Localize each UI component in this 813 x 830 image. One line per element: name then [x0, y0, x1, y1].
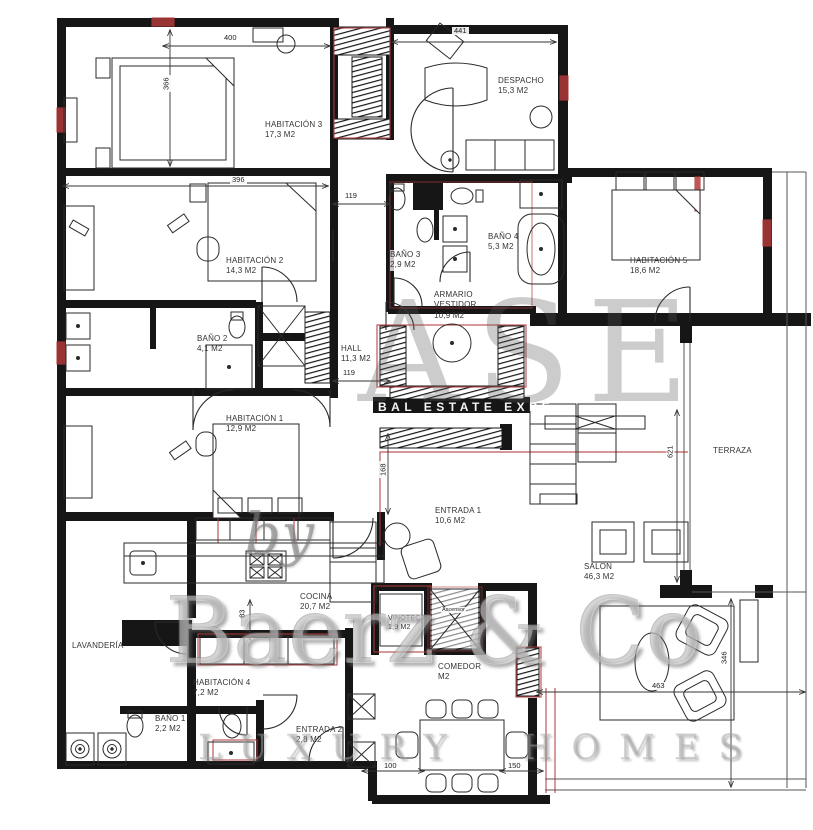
- bed-habitacion-1: [64, 424, 302, 518]
- dimension-396: 396: [230, 176, 247, 184]
- room-label-entrada-2: ENTRADA 22,8 M2: [296, 725, 356, 746]
- entrada-armchair: [384, 523, 442, 580]
- room-label-bano-2: BAÑO 24,1 M2: [197, 334, 247, 355]
- floor-plan: HABITACIÓN 317,3 M2 DESPACHO15,3 M2 HABI…: [0, 0, 813, 830]
- room-label-habitacion-1: HABITACIÓN 112,9 M2: [226, 414, 306, 435]
- kitchen-counter: [124, 518, 384, 602]
- room-label-habitacion-5: HABITACIÓN 518,6 M2: [630, 256, 710, 277]
- room-label-habitacion-4: HABITACIÓN 47,2 M2: [193, 678, 273, 699]
- elevator-label: Ascensor: [441, 607, 466, 613]
- room-label-cocina: COCINA20,7 M2: [300, 592, 350, 613]
- room-label-habitacion-2: HABITACIÓN 214,3 M2: [226, 256, 298, 277]
- terrace-lounge: [600, 600, 758, 724]
- dining-table: [396, 700, 528, 792]
- dimension-346: 346: [721, 649, 729, 666]
- dimension-83: 83: [238, 608, 246, 620]
- room-label-vinoteca: VINOTECA1,9 M2: [388, 614, 438, 632]
- room-label-bano-4: BAÑO 45,3 M2: [488, 232, 534, 253]
- room-label-armario-vestidor: ARMARIO VESTIDOR10,9 M2: [434, 290, 484, 321]
- room-label-salon: SALON46,3 M2: [584, 562, 634, 583]
- salon-sofa: [530, 404, 688, 562]
- dimension-119-bottom: 119: [341, 369, 357, 377]
- dimension-100: 100: [382, 762, 399, 770]
- dimension-366: 366: [163, 75, 171, 92]
- bed-habitacion-5: [612, 172, 704, 260]
- dimension-621: 621: [667, 443, 675, 460]
- dimension-168: 168: [380, 461, 388, 478]
- bed-habitacion-3: [64, 58, 234, 168]
- room-label-lavanderia: LAVANDERÍA: [72, 641, 152, 651]
- bench-habitacion-4: [200, 636, 334, 664]
- room-label-terraza: TERRAZA: [713, 446, 773, 456]
- room-label-hall: HALL11,3 M2: [341, 344, 383, 365]
- room-label-habitacion-3: HABITACIÓN 317,3 M2: [265, 120, 335, 141]
- washing-machines: [66, 733, 126, 765]
- dimension-150: 150: [506, 762, 523, 770]
- dimension-119-top: 119: [343, 192, 359, 200]
- floor-plan-drawing: [0, 0, 813, 830]
- dimension-463: 463: [650, 682, 667, 690]
- room-label-bano-1: BAÑO 12,2 M2: [155, 714, 205, 735]
- room-label-entrada-1: ENTRADA 110,6 M2: [435, 506, 495, 527]
- room-label-comedor: COMEDORM2: [438, 662, 498, 683]
- dimension-400: 400: [222, 34, 239, 42]
- dimension-441: 441: [452, 27, 469, 35]
- room-label-bano-3: BAÑO 32,9 M2: [390, 250, 434, 271]
- room-label-despacho: DESPACHO15,3 M2: [498, 76, 558, 97]
